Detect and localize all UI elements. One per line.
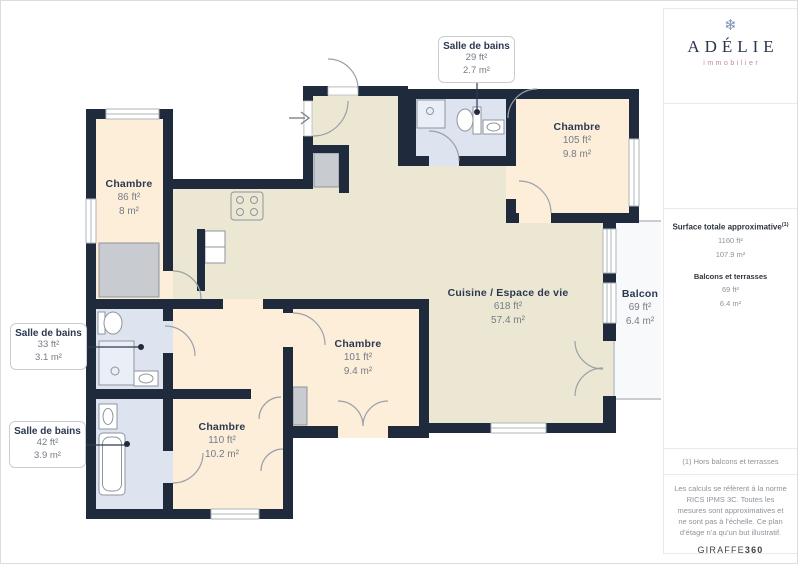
door-arc	[328, 59, 358, 89]
sink-icon	[483, 120, 504, 134]
brand-logo: ❄ ADÉLIE immobilier	[663, 8, 798, 104]
callout-area-m: 3.1 m²	[15, 352, 82, 365]
balconies-label: Balcons et terrasses	[664, 272, 797, 281]
callout-bath-bottom-left: Salle de bains 42 ft² 3.9 m²	[9, 421, 86, 468]
callout-area-ft: 29 ft²	[443, 52, 510, 65]
sink-icon	[134, 371, 158, 386]
floor-bedroom-tr	[506, 89, 639, 223]
total-area-m: 107.9 m²	[664, 250, 797, 259]
shower-icon	[417, 100, 445, 128]
giraffe360-watermark: GIRAFFE360	[674, 544, 787, 557]
sliding-door	[603, 229, 616, 273]
toilet-icon	[98, 312, 122, 334]
footnote: (1) Hors balcons et terrasses	[663, 448, 798, 475]
callout-area-m: 2.7 m²	[443, 65, 510, 78]
callout-area-ft: 33 ft²	[15, 339, 82, 352]
floor-kitchen-arm	[163, 179, 313, 309]
brand-tagline: immobilier	[664, 60, 797, 67]
summary-title-footnote-ref: (1)	[782, 222, 789, 228]
floor-balcony	[614, 221, 661, 399]
window	[211, 509, 259, 519]
disclaimer-box: Les calculs se réfèrent à la norme RICS …	[663, 474, 798, 554]
bathtub-icon	[99, 433, 125, 495]
snowflake-icon: ❄	[664, 18, 797, 33]
info-sidebar: ❄ ADÉLIE immobilier Surface totale appro…	[663, 9, 798, 554]
callout-name: Salle de bains	[14, 426, 81, 437]
closet	[314, 153, 339, 187]
callout-bath-top: Salle de bains 29 ft² 2.7 m²	[438, 36, 515, 83]
summary-title-text: Surface totale approximative	[672, 223, 781, 232]
watermark-normal: GIRAFFE	[697, 545, 744, 555]
callout-name: Salle de bains	[15, 328, 82, 339]
callout-area-ft: 42 ft²	[14, 437, 81, 450]
floorplan-page: Chambre 86 ft² 8 m² Chambre 105 ft² 9.8 …	[0, 0, 798, 564]
surface-summary: Surface totale approximative(1) 1160 ft²…	[663, 208, 798, 449]
wardrobe	[293, 387, 307, 425]
brand-name: ADÉLIE	[664, 37, 797, 57]
balconies-area-m: 6.4 m²	[664, 299, 797, 308]
total-area-ft: 1160 ft²	[664, 236, 797, 245]
summary-title: Surface totale approximative(1)	[664, 222, 797, 232]
watermark-bold: 360	[745, 545, 764, 555]
door-leaf	[328, 87, 358, 95]
window	[106, 109, 159, 119]
wardrobe	[99, 243, 159, 297]
sink-icon	[99, 404, 117, 429]
disclaimer-text: Les calculs se réfèrent à la norme RICS …	[674, 484, 787, 538]
window	[629, 139, 639, 206]
balconies-area-ft: 69 ft²	[664, 285, 797, 294]
window	[86, 199, 96, 243]
callout-name: Salle de bains	[443, 41, 510, 52]
floor-plan	[1, 1, 661, 564]
sliding-door	[603, 283, 616, 323]
sidebar-spacer	[663, 103, 798, 209]
window	[491, 423, 546, 433]
callout-area-m: 3.9 m²	[14, 450, 81, 463]
callout-bath-left: Salle de bains 33 ft² 3.1 m²	[10, 323, 87, 370]
